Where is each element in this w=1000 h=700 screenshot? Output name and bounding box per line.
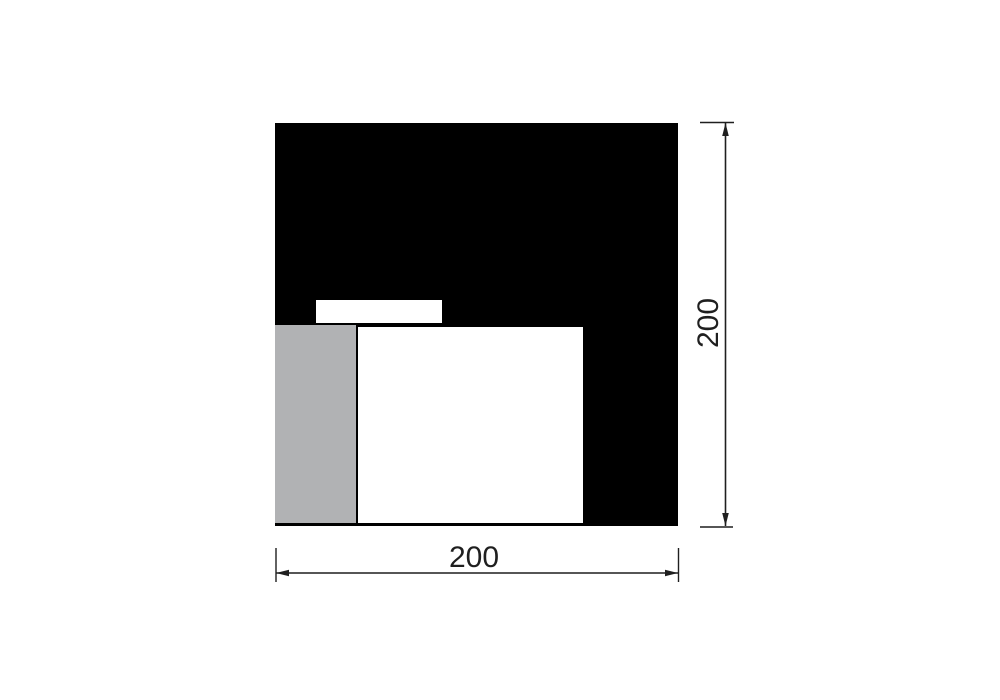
width-arrow-left-icon: [276, 570, 289, 577]
width-dimension-label: 200: [424, 542, 524, 574]
white-slot-rect: [316, 300, 442, 323]
gray-rect: [275, 325, 356, 523]
technical-drawing-canvas: 200 200: [0, 0, 1000, 700]
height-dimension-label: 200: [693, 273, 725, 373]
height-arrow-up-icon: [722, 123, 729, 136]
white-rect: [356, 325, 583, 523]
width-arrow-right-icon: [665, 570, 678, 577]
height-arrow-down-icon: [722, 513, 729, 526]
